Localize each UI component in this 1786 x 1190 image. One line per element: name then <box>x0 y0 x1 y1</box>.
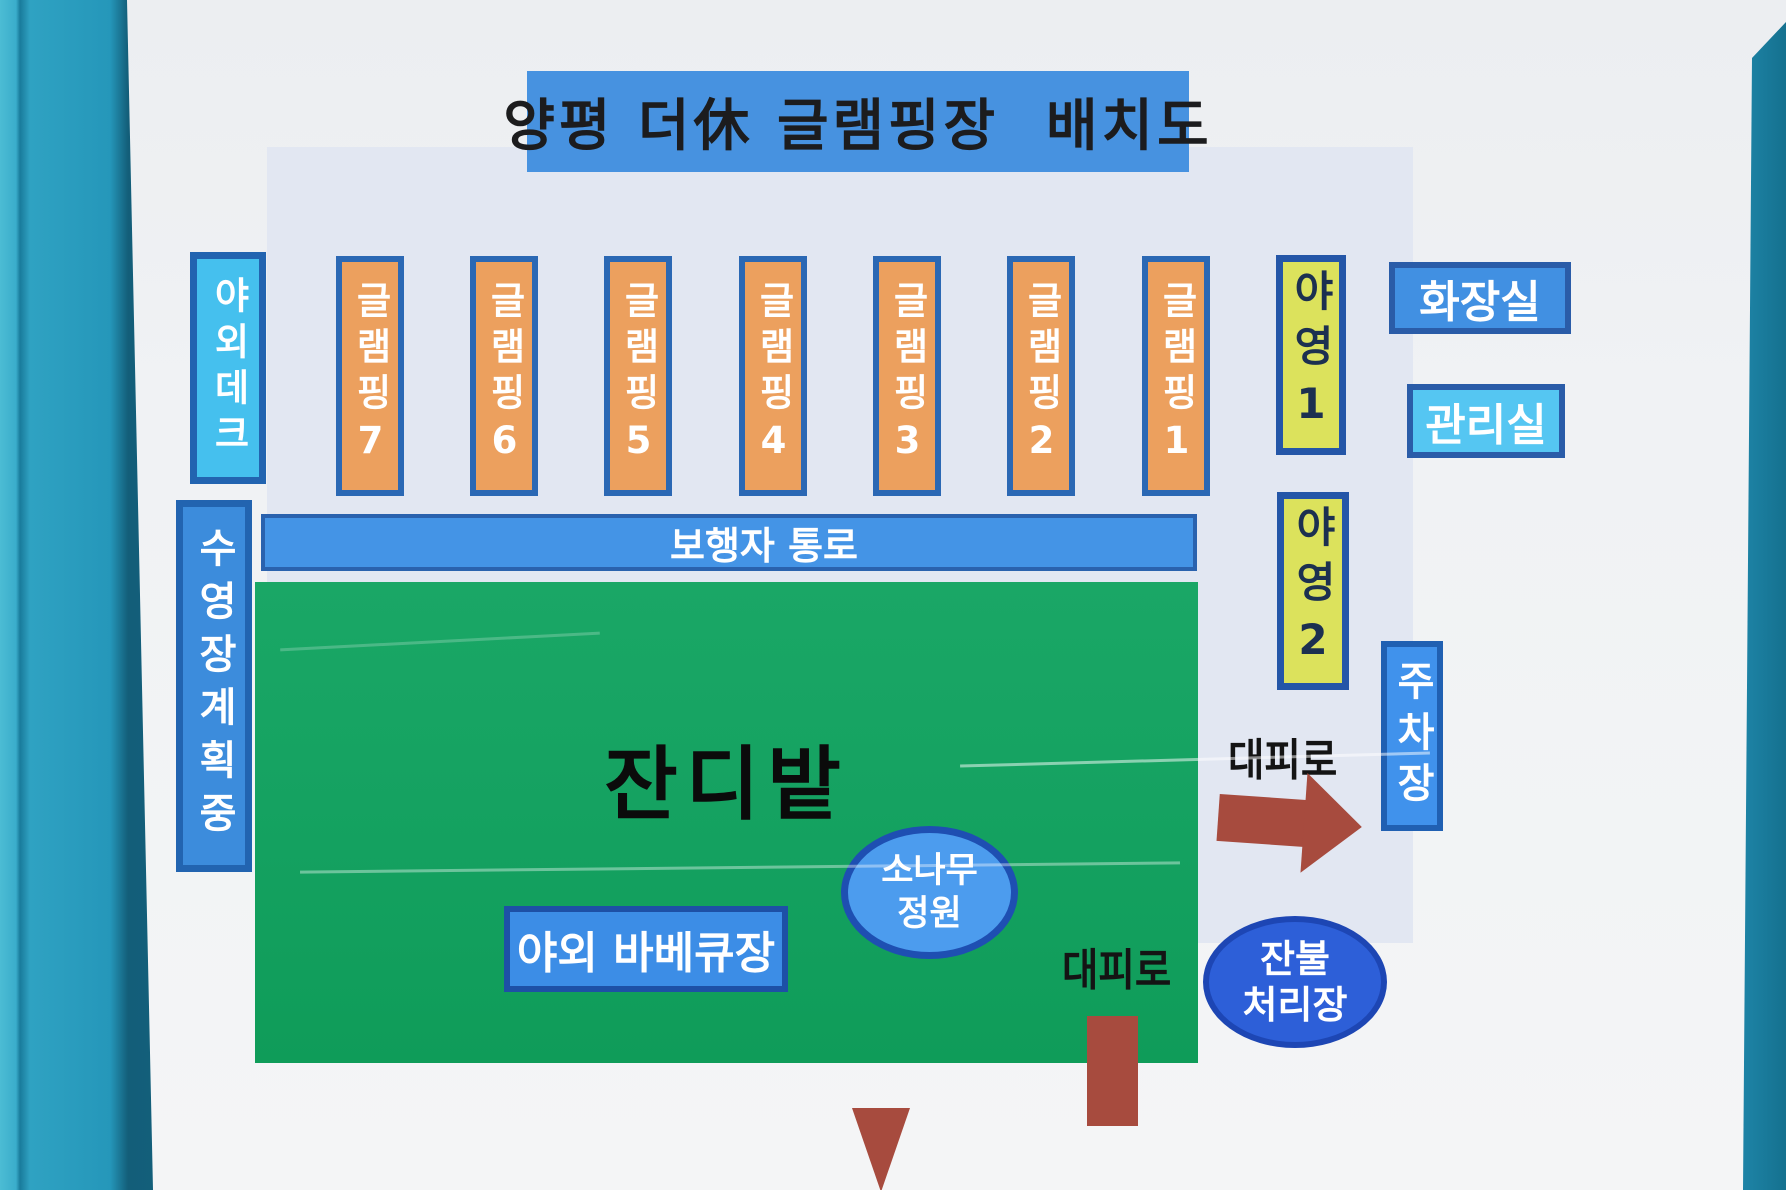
zone-ember-disposal: 잔불 처리장 <box>1203 916 1387 1048</box>
title-banner: 양평 더休 글램핑장 배치도 <box>527 71 1189 172</box>
walkway-bar: 보행자 통로 <box>261 514 1197 571</box>
zone-camping-1: 야영1 <box>1276 255 1346 455</box>
page-title: 양평 더休 글램핑장 배치도 <box>503 81 1212 162</box>
zone-glamping-7: 글램핑7 <box>336 256 404 496</box>
zone-pine-garden: 소나무 정원 <box>841 826 1018 959</box>
evac-arrow-right-icon <box>1215 767 1368 877</box>
zone-glamping-4: 글램핑4 <box>739 256 807 496</box>
zone-glamping-5: 글램핑5 <box>604 256 672 496</box>
pine-garden-line1: 소나무 <box>881 850 978 893</box>
ember-line1: 잔불 <box>1260 936 1330 982</box>
zone-camping-2: 야영2 <box>1277 492 1349 690</box>
evac-arrow-down-icon <box>852 1108 910 1190</box>
zone-pool-planned: 수영장계획중 <box>176 500 252 872</box>
zone-glamping-1: 글램핑1 <box>1142 256 1210 496</box>
zone-glamping-3: 글램핑3 <box>873 256 941 496</box>
zone-office: 관리실 <box>1407 384 1565 458</box>
lawn-label: 잔디밭 <box>604 720 849 836</box>
zone-parking: 주차장 <box>1381 641 1443 831</box>
zone-glamping-6: 글램핑6 <box>470 256 538 496</box>
pine-garden-line2: 정원 <box>897 893 961 936</box>
zone-outdoor-deck: 야외데크 <box>190 252 266 484</box>
evac-route-label-bottom: 대피로 <box>1062 934 1171 998</box>
zone-bbq: 야외 바베큐장 <box>504 906 788 992</box>
campground-map-sign-photo: 양평 더休 글램핑장 배치도 야외데크 수영장계획중 글램핑7 글램핑6 글램핑… <box>0 0 1786 1190</box>
ember-line2: 처리장 <box>1243 982 1348 1028</box>
evac-path-segment <box>1087 1016 1138 1126</box>
zone-glamping-2: 글램핑2 <box>1007 256 1075 496</box>
zone-restroom: 화장실 <box>1389 262 1571 334</box>
evac-arrow-right-body <box>1217 794 1310 847</box>
evac-arrow-right-head <box>1300 773 1365 877</box>
